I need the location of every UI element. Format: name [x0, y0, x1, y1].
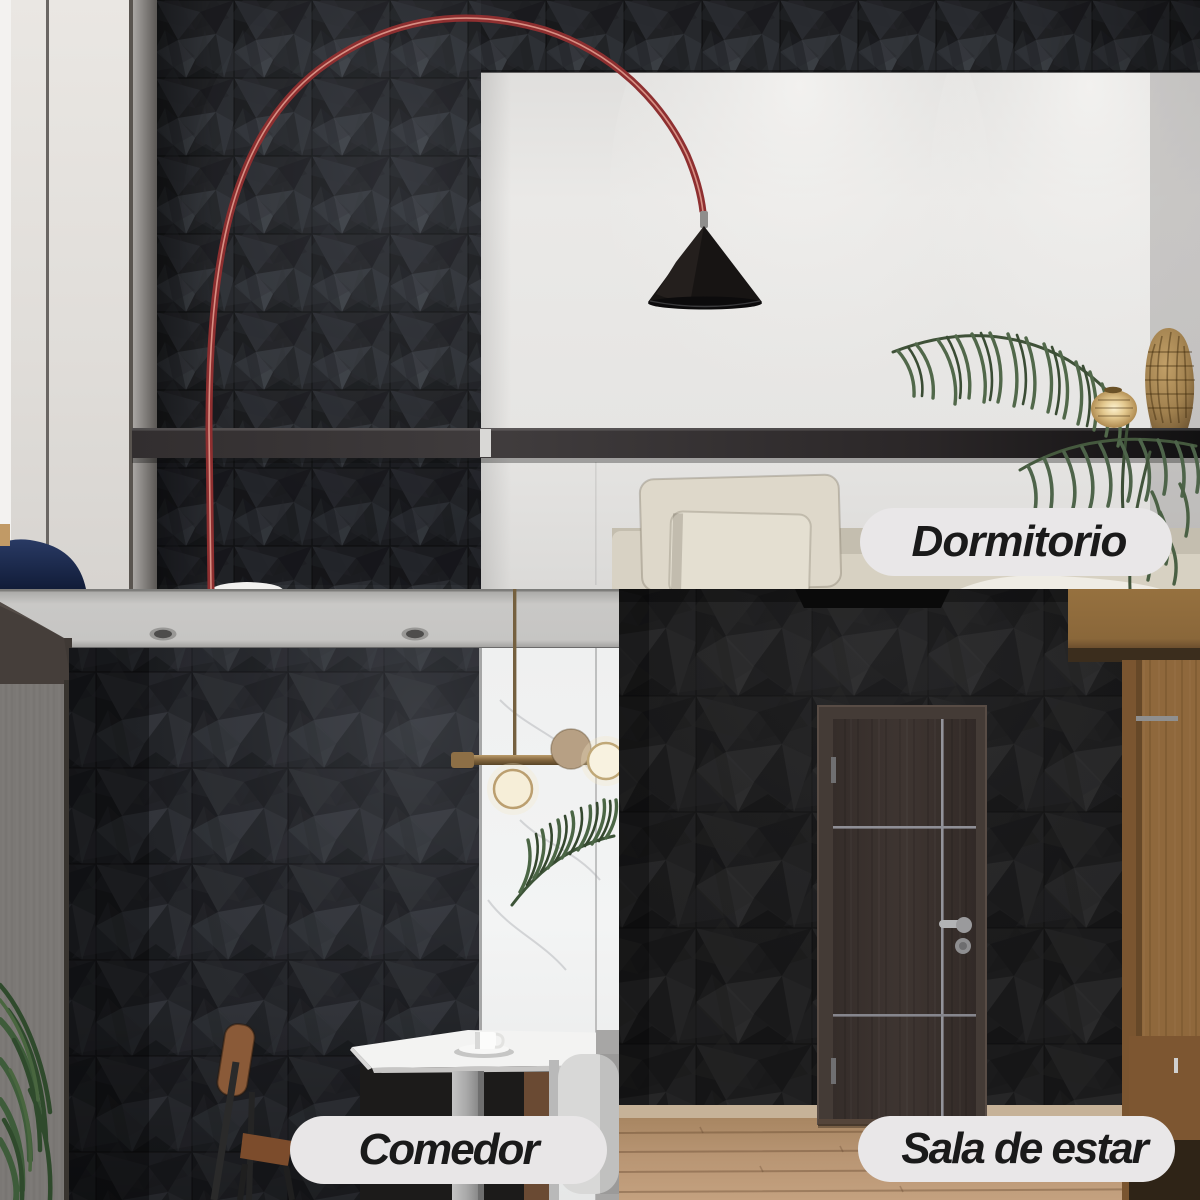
svg-text:Sala de estar: Sala de estar: [901, 1124, 1151, 1173]
svg-text:Comedor: Comedor: [358, 1125, 542, 1174]
svg-text:Dormitorio: Dormitorio: [912, 517, 1127, 566]
